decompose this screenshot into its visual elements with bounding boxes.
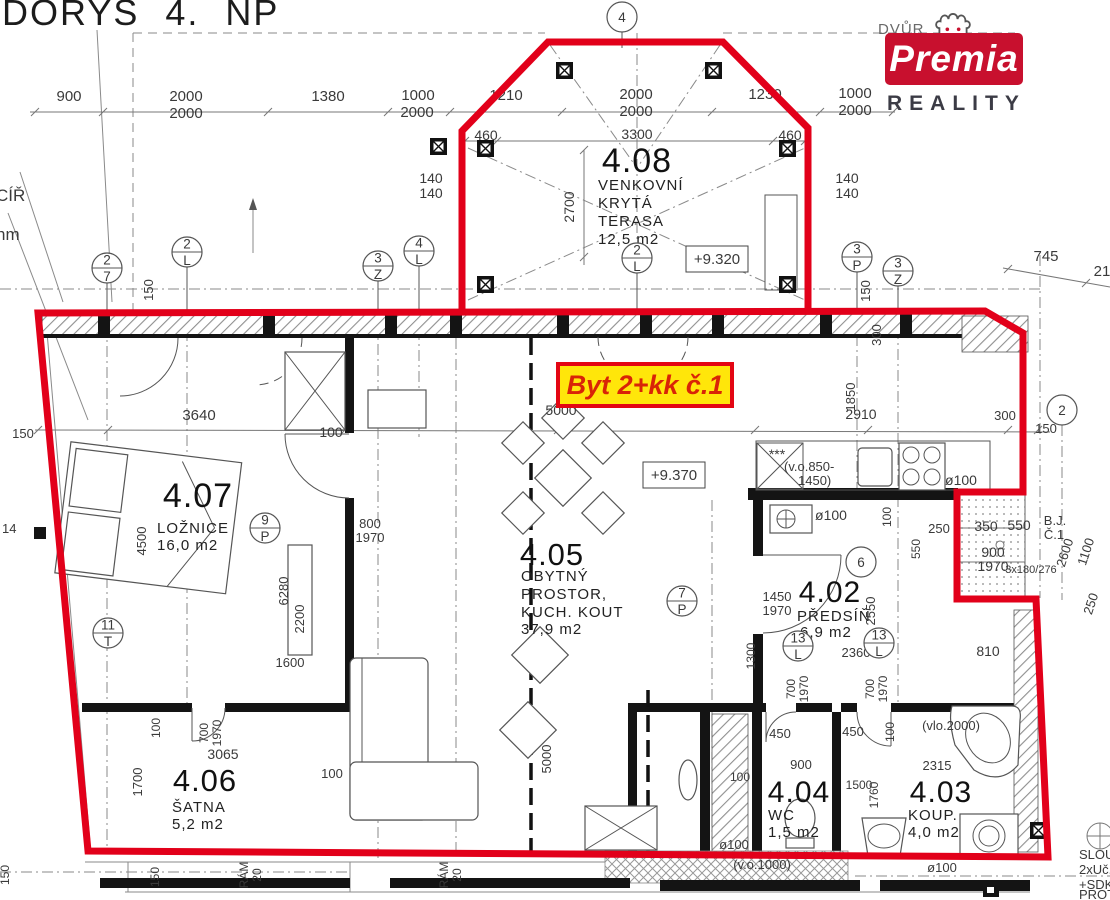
room-label-hall: 4.02 PŘEDSÍŇ 6,9 m2 bbox=[797, 576, 871, 641]
room-area: 4,0 m2 bbox=[908, 824, 960, 841]
sink-icon bbox=[858, 448, 892, 486]
grid-marker: 7P bbox=[667, 586, 697, 618]
grid-marker-label: P bbox=[852, 258, 861, 273]
dimension-text: (vlo.2000) bbox=[922, 718, 980, 733]
dimension-text: RÁM bbox=[236, 862, 251, 889]
sofa bbox=[350, 658, 478, 820]
grid-marker-label: 2 bbox=[1058, 403, 1066, 418]
dimension-text: 460 bbox=[474, 127, 498, 143]
grid-marker-label: 2 bbox=[103, 253, 111, 268]
dimension-text: 2910 bbox=[845, 406, 876, 422]
room-area: 1,5 m2 bbox=[768, 824, 820, 841]
grid-marker: 3Z bbox=[363, 251, 393, 311]
washing-machine-icon bbox=[960, 814, 1018, 858]
brand-text: Premia bbox=[889, 38, 1018, 79]
coffee-tables bbox=[500, 627, 569, 759]
washbasin-icon bbox=[862, 818, 906, 856]
room-number: 4.08 bbox=[602, 142, 672, 180]
dimension-text: 100 bbox=[880, 507, 894, 527]
dimension-text: (v.o.850- bbox=[784, 459, 834, 474]
svg-text:TERASA: TERASA bbox=[598, 213, 664, 230]
grid-marker-label: L bbox=[415, 252, 423, 267]
dimension-text: 700 bbox=[863, 679, 877, 699]
room-name: WC bbox=[768, 807, 795, 824]
dimension-text: 250 bbox=[928, 521, 950, 536]
dimension-text: 300 bbox=[994, 408, 1016, 423]
grid-marker-label: Z bbox=[374, 267, 382, 282]
floorplan-page: +9.320 +9.370 4.08 VENKOVNÍ KRYTÁ TERASA… bbox=[0, 0, 1110, 900]
grid-marker: 9P bbox=[250, 513, 280, 545]
dimension-text: 2000 bbox=[169, 88, 202, 105]
dimension-text: 2315 bbox=[923, 758, 952, 773]
dimension-text: 20 bbox=[450, 868, 464, 882]
level-marker-living: +9.370 bbox=[643, 462, 705, 488]
dimension-text: 350 bbox=[974, 518, 998, 534]
grid-marker: 2L bbox=[622, 243, 652, 311]
dimension-text: SLOUP bbox=[1079, 847, 1110, 862]
grid-marker-label: 2 bbox=[633, 243, 641, 258]
dimension-text: 2000 bbox=[169, 105, 202, 122]
dimension-text: 1970 bbox=[763, 603, 792, 618]
dimension-text: 5000 bbox=[539, 745, 554, 774]
unit-label: Byt 2+kk č.1 bbox=[556, 362, 734, 408]
dimension-text: 150 bbox=[0, 865, 12, 885]
dimension-text: 150 bbox=[1035, 421, 1057, 436]
dimension-text: 2000 bbox=[400, 104, 433, 121]
room-name: VENKOVNÍ bbox=[598, 177, 684, 194]
room-name: OBYTNÝ bbox=[521, 568, 589, 585]
dimension-text: 150 bbox=[12, 426, 34, 441]
room-name: PŘEDSÍŇ bbox=[797, 608, 871, 625]
dimension-text: 450 bbox=[842, 724, 864, 739]
dimension-text: 2700 bbox=[561, 191, 577, 222]
grid-marker: 11T bbox=[93, 618, 123, 650]
dimension-text: 1450) bbox=[798, 473, 831, 488]
reality-label: REALITY bbox=[887, 92, 1021, 116]
dimension-text: 1760 bbox=[867, 781, 881, 808]
shaft-fixture bbox=[679, 760, 697, 800]
dimension-text: 1600 bbox=[276, 655, 305, 670]
floorplan-drawing: +9.320 +9.370 4.08 VENKOVNÍ KRYTÁ TERASA… bbox=[0, 0, 1110, 900]
grid-marker-label: 11 bbox=[101, 618, 115, 633]
tv-cabinet bbox=[585, 806, 657, 850]
dimension-text: ø100 bbox=[719, 837, 749, 852]
dimension-text: 700 bbox=[784, 679, 798, 699]
dimension-text: 550 bbox=[1007, 517, 1031, 533]
dimension-text: 1100 bbox=[1074, 536, 1097, 567]
dimension-text: 1700 bbox=[130, 768, 145, 797]
dimension-text: 140 bbox=[835, 170, 859, 186]
grid-marker-label: 3 bbox=[374, 251, 382, 266]
dimension-text: B.J. bbox=[1044, 513, 1066, 528]
dimension-text: 460 bbox=[778, 127, 802, 143]
dimension-text: 1380 bbox=[311, 88, 344, 105]
grid-marker-label: P bbox=[260, 529, 269, 544]
room-number: 4.03 bbox=[910, 776, 972, 809]
dimension-text: 3065 bbox=[207, 746, 238, 762]
dimension-text: 1000 bbox=[401, 87, 434, 104]
dimension-text: 150 bbox=[858, 280, 873, 302]
premia-brand-box: Premia bbox=[885, 33, 1023, 85]
dimension-text: 1450 bbox=[763, 589, 792, 604]
room-label-closet: 4.06 ŠATNA 5,2 m2 bbox=[172, 763, 237, 833]
dimension-text: 140 bbox=[835, 185, 859, 201]
dimension-text: 900 bbox=[56, 88, 81, 105]
grid-marker: 2 bbox=[1047, 395, 1077, 425]
grid-marker: 4L bbox=[404, 236, 434, 311]
dimension-text: 1970 bbox=[797, 675, 811, 702]
dimension-text: 1970 bbox=[876, 675, 890, 702]
dimension-text: 2000 bbox=[619, 86, 652, 103]
dimension-text: 4500 bbox=[134, 527, 149, 556]
grid-marker: 2L bbox=[172, 237, 202, 311]
dimension-text: 745 bbox=[1033, 248, 1058, 265]
grid-marker-label: 13 bbox=[790, 631, 805, 646]
room-area: 5,2 m2 bbox=[172, 816, 224, 833]
grid-marker-label: 7 bbox=[103, 269, 111, 284]
dimension-text: 1000 bbox=[838, 85, 871, 102]
dimension-text: 2xUč. bbox=[1079, 862, 1110, 877]
dimension-text: 1970 bbox=[356, 530, 385, 545]
dimension-text: 1970 bbox=[210, 719, 224, 746]
dimension-text: 300 bbox=[869, 324, 884, 346]
dimension-text: 14 bbox=[2, 521, 16, 536]
dimension-text: PROTI bbox=[1079, 887, 1110, 900]
room-number: 4.04 bbox=[768, 776, 830, 809]
room-name: ŠATNA bbox=[172, 799, 226, 816]
room-label-wc: 4.04 WC 1,5 m2 bbox=[768, 776, 830, 841]
room-number: 4.02 bbox=[799, 576, 861, 609]
dimension-text: 150 bbox=[141, 279, 156, 301]
svg-text:KUCH. KOUT: KUCH. KOUT bbox=[521, 604, 624, 621]
dimension-text: 450 bbox=[769, 726, 791, 741]
dimension-text: 2000 bbox=[838, 102, 871, 119]
svg-text:KRYTÁ: KRYTÁ bbox=[598, 195, 653, 212]
dimension-text: 100 bbox=[883, 722, 897, 742]
dimension-text: 100 bbox=[319, 424, 343, 440]
room-label-living: 4.05 OBYTNÝ PROSTOR, KUCH. KOUT 37,9 m2 bbox=[520, 537, 624, 638]
dimension-text: 6280 bbox=[276, 577, 291, 606]
grid-marker: 27 bbox=[92, 253, 122, 311]
grid-marker-label: 9 bbox=[261, 513, 269, 528]
room-name: LOŽNICE bbox=[157, 520, 229, 537]
grid-marker-label: L bbox=[875, 644, 883, 659]
dimension-text: 900 bbox=[790, 757, 812, 772]
grid-marker-label: 7 bbox=[678, 586, 686, 601]
dimension-text: 810 bbox=[976, 643, 1000, 659]
dimension-text: RÁM bbox=[436, 862, 451, 889]
dimension-text: 2000 bbox=[619, 103, 652, 120]
dimension-text: (v.o.1000) bbox=[733, 857, 791, 872]
dimension-text: 100 bbox=[321, 766, 343, 781]
dimension-text: 3300 bbox=[621, 126, 652, 142]
dimension-text: 3640 bbox=[182, 407, 215, 424]
grid-marker: 6 bbox=[846, 547, 876, 577]
dimension-text: 20 bbox=[250, 868, 264, 882]
dimension-text: 140 bbox=[419, 170, 443, 186]
dimension-text: 150 bbox=[148, 867, 162, 887]
premia-logo: DVŮR Premia REALITY bbox=[875, 10, 1035, 115]
dimension-text: 2200 bbox=[292, 605, 307, 634]
svg-text:PROSTOR,: PROSTOR, bbox=[521, 586, 607, 603]
grid-marker-label: 3 bbox=[853, 242, 861, 257]
dimension-text: 1300 bbox=[744, 642, 758, 669]
dimension-text: 700 bbox=[197, 723, 211, 743]
room-number: 4.06 bbox=[173, 763, 237, 798]
grid-marker-label: 13 bbox=[871, 628, 886, 643]
page-title: DORYS 4. NP bbox=[2, 0, 279, 34]
living-level-value: +9.370 bbox=[651, 467, 697, 484]
dimension-text: 250 bbox=[1080, 591, 1101, 616]
dimension-text: CÍŘ bbox=[0, 186, 25, 205]
dimension-text: 3x180/276 bbox=[1005, 564, 1056, 576]
dimension-text: 2550 bbox=[863, 597, 878, 626]
dimension-text: 800 bbox=[359, 516, 381, 531]
grid-marker-label: L bbox=[794, 647, 802, 662]
exterior-wall-top bbox=[42, 314, 990, 338]
dimension-text: 1970 bbox=[977, 558, 1008, 574]
room-number: 4.05 bbox=[520, 537, 584, 572]
room-number: 4.07 bbox=[163, 477, 233, 515]
dimension-text: ø100 bbox=[945, 472, 977, 488]
dimension-text: 100 bbox=[730, 770, 750, 784]
grid-marker-label: T bbox=[104, 634, 112, 649]
room-area: 37,9 m2 bbox=[521, 621, 582, 638]
hall-fixture bbox=[770, 505, 812, 533]
grid-marker-label: L bbox=[183, 253, 191, 268]
dimension-text: 21 bbox=[1094, 263, 1110, 280]
grid-marker-label: 4 bbox=[618, 10, 626, 25]
grid-marker-label: Z bbox=[894, 272, 902, 287]
dimension-text: 550 bbox=[909, 539, 923, 559]
grid-marker: 13L bbox=[783, 631, 813, 663]
bathtub-icon bbox=[951, 705, 1021, 777]
room-label-terrace: 4.08 VENKOVNÍ KRYTÁ TERASA 12,5 m2 bbox=[598, 142, 684, 248]
grid-marker: 13L bbox=[864, 628, 894, 660]
dimension-text: ø100 bbox=[927, 860, 957, 875]
grid-marker-label: 4 bbox=[415, 236, 423, 251]
dimension-text: 140 bbox=[419, 185, 443, 201]
grid-marker-label: 2 bbox=[183, 237, 191, 252]
level-marker-terrace: +9.320 bbox=[686, 246, 748, 272]
grid-marker-label: P bbox=[677, 602, 686, 617]
room-name: KOUP. bbox=[908, 807, 958, 824]
bed bbox=[55, 442, 242, 594]
dimension-text: hm bbox=[0, 225, 20, 244]
dimension-text: ø100 bbox=[815, 507, 847, 523]
grid-marker-label: L bbox=[633, 259, 641, 274]
terrace-level-value: +9.320 bbox=[694, 251, 740, 268]
door-swings bbox=[120, 337, 891, 746]
grid-marker: 3Z bbox=[883, 256, 913, 311]
dimension-text: 100 bbox=[149, 718, 163, 738]
grid-marker-label: 6 bbox=[857, 555, 865, 570]
grid-marker-label: 3 bbox=[894, 256, 902, 271]
room-area: 16,0 m2 bbox=[157, 537, 218, 554]
